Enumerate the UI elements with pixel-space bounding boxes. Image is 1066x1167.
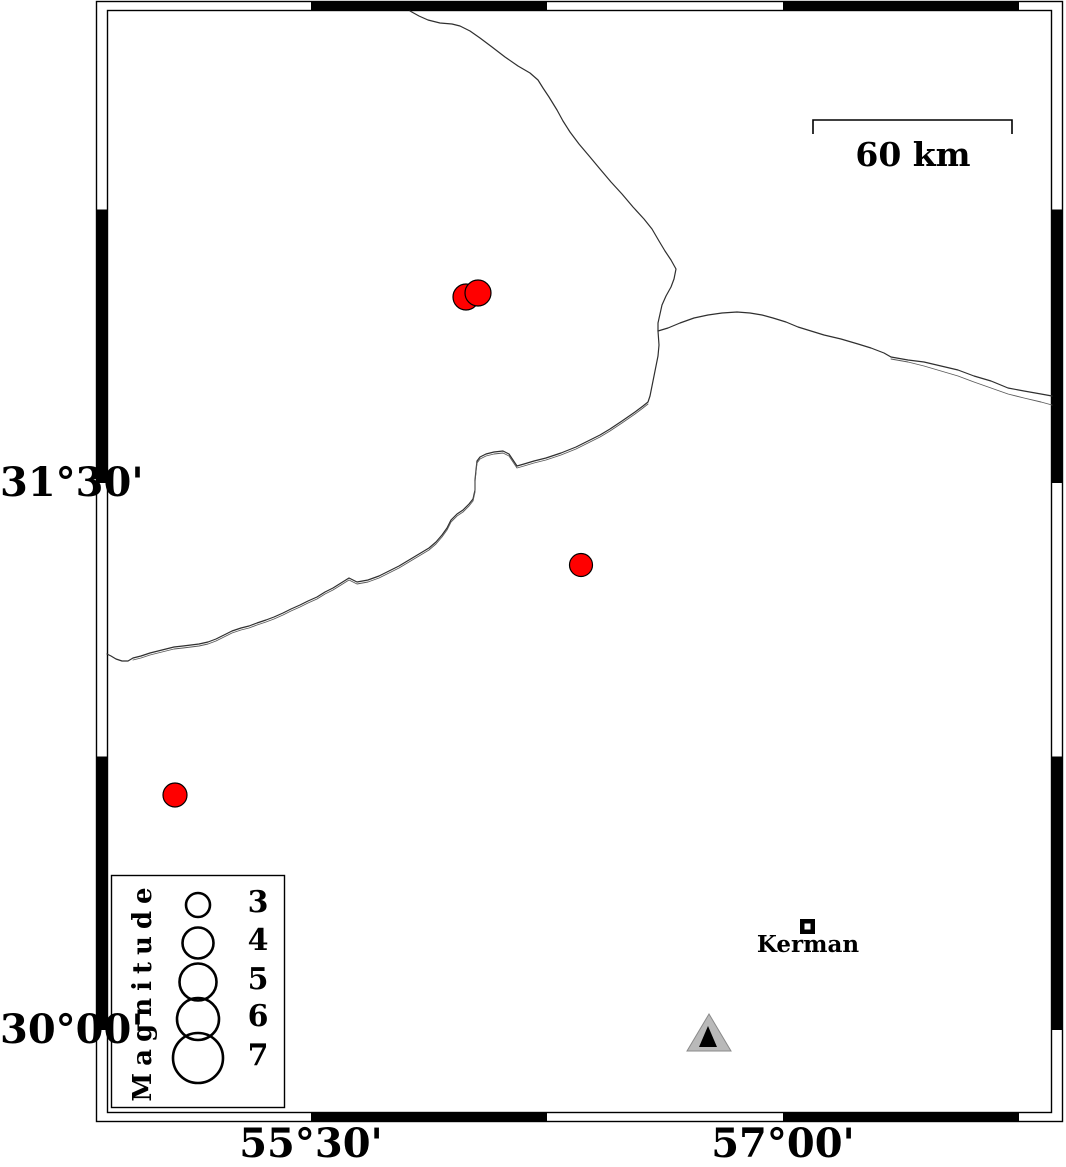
legend-value-6: 6	[236, 1002, 280, 1032]
legend-value-3: 3	[236, 888, 280, 918]
frame-segment	[97, 757, 108, 1031]
frame-segment	[783, 2, 1019, 12]
frame-segment	[97, 210, 108, 484]
boundary-line-east-upper	[891, 357, 1052, 396]
map-canvas	[0, 0, 1066, 1160]
scale-bar	[813, 120, 1012, 134]
legend-value-4: 4	[236, 926, 280, 956]
earthquake-epicenter	[570, 554, 593, 577]
seismicity-map-page: { "axes": { "left": [ {"label": "31\u00b…	[0, 0, 1066, 1160]
scale-bar-label: 60 km	[813, 138, 1013, 171]
boundary-line-southwest-double	[133, 404, 648, 660]
boundary-line-southwest	[107, 331, 659, 661]
earthquake-epicenter	[465, 280, 491, 306]
station-triangle	[687, 1014, 731, 1051]
boundary-line-east	[658, 312, 891, 357]
lon-label-55-30: 55°30'	[221, 1124, 401, 1164]
legend-title: Magnitude	[128, 880, 158, 1101]
city-label: Kerman	[728, 933, 888, 956]
lat-label-31-30: 31°30'	[0, 463, 88, 503]
frame-segment	[1052, 210, 1063, 484]
lon-label-57-00: 57°00'	[693, 1124, 873, 1164]
lat-label-30-00: 30°00'	[0, 1010, 88, 1050]
boundary-line-east-lower	[891, 359, 1052, 405]
earthquake-epicenter	[163, 783, 187, 807]
frame-segment	[1052, 757, 1063, 1031]
earthquake-layer	[163, 280, 593, 807]
legend-value-7: 7	[236, 1041, 280, 1071]
boundary-line-north	[410, 11, 676, 331]
legend-value-5: 5	[236, 965, 280, 995]
frame-segment	[311, 2, 547, 12]
